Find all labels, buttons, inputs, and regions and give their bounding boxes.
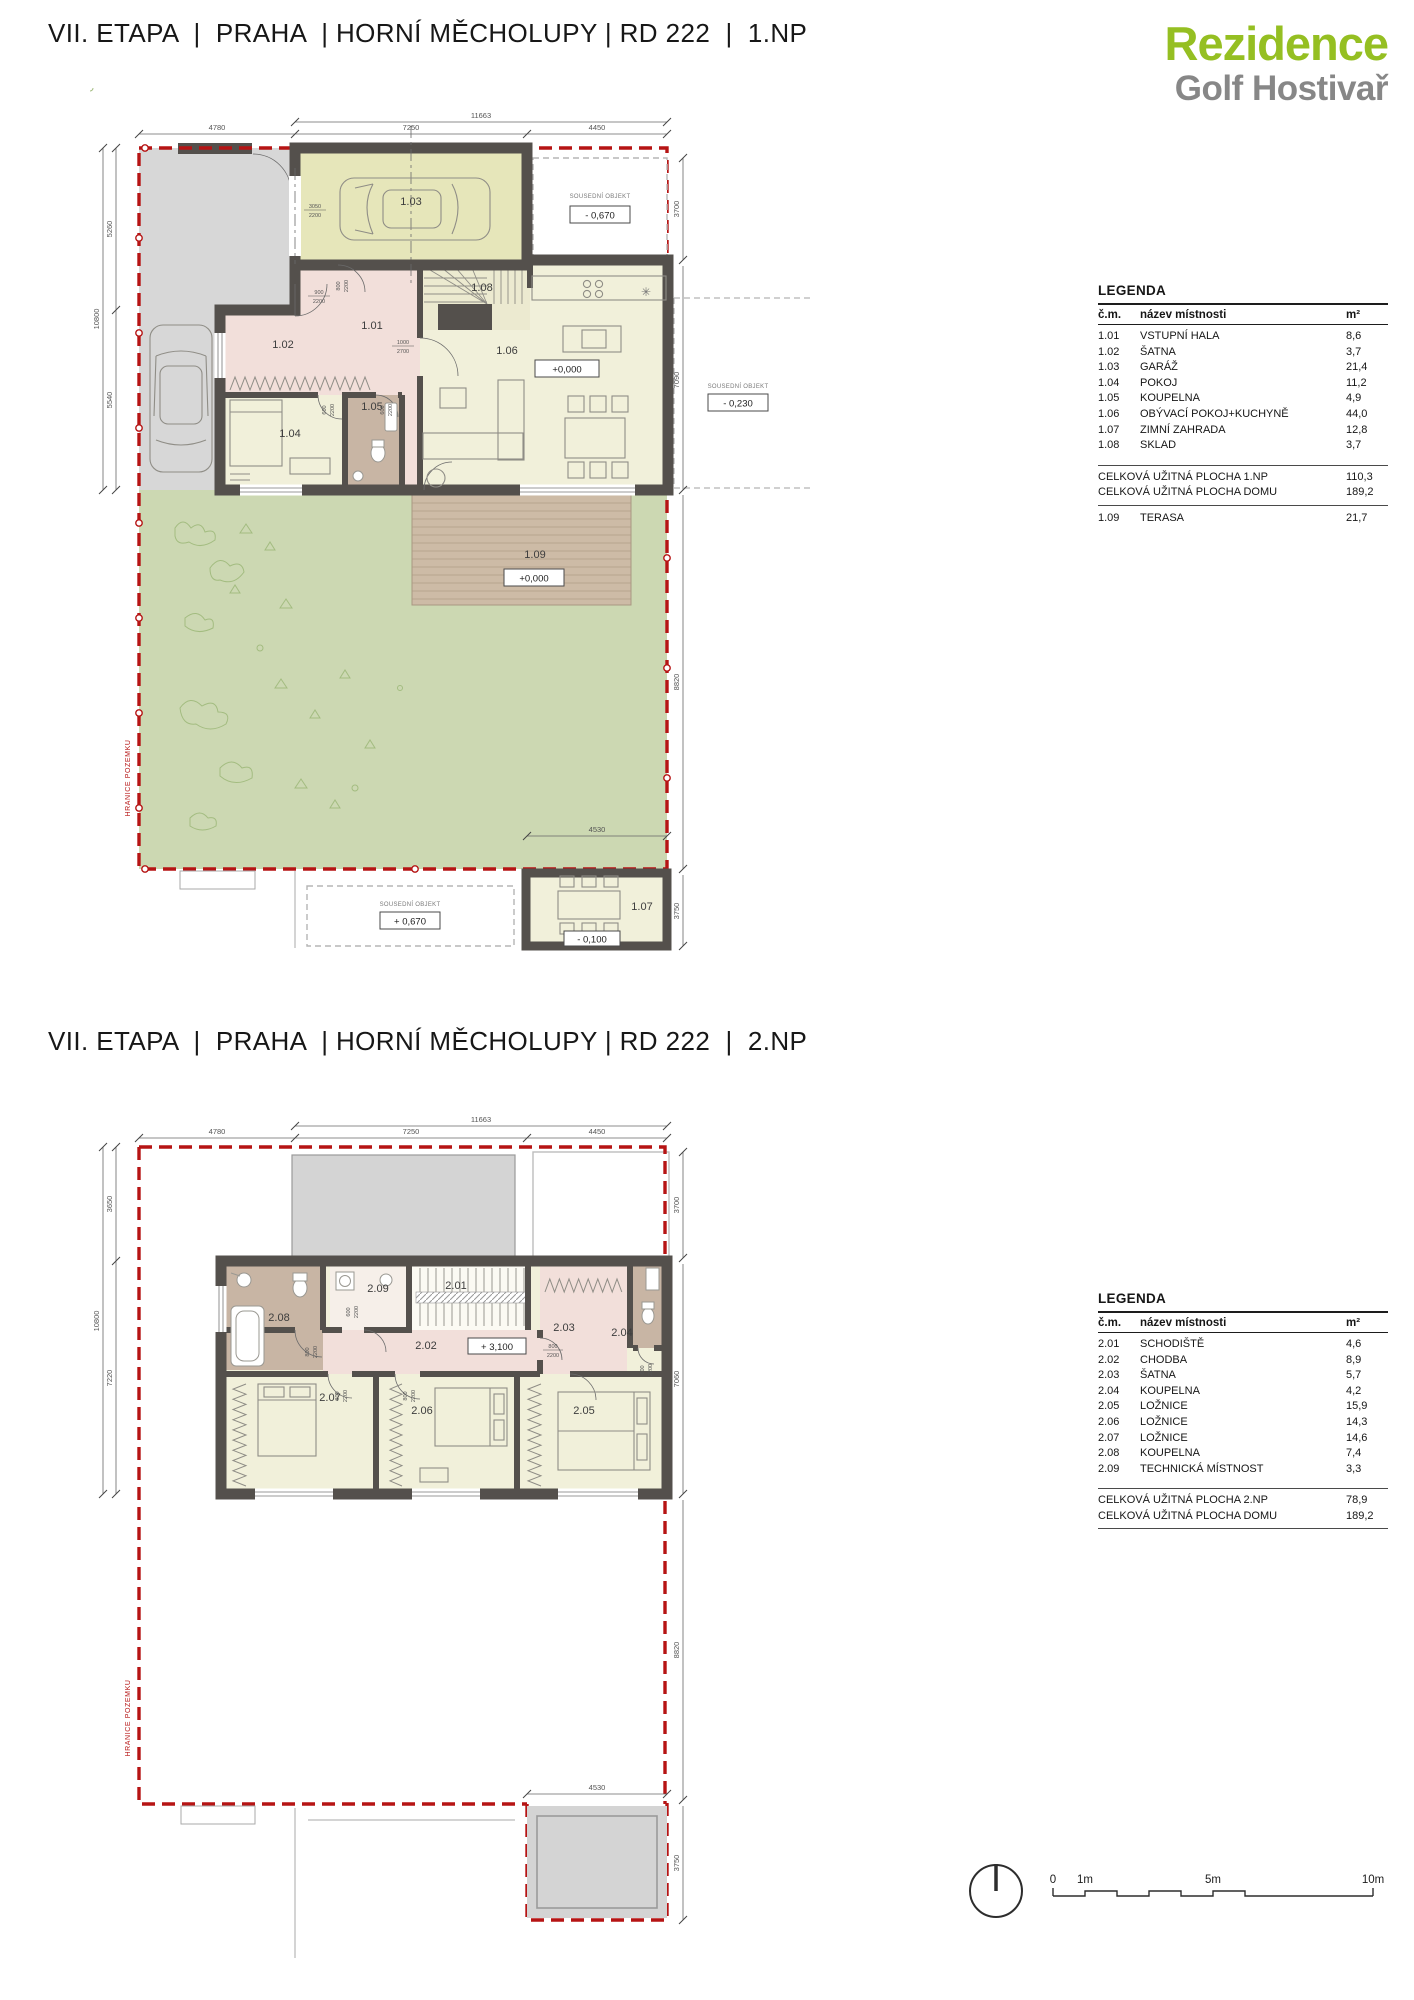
legend-title: LEGENDA <box>1098 1291 1388 1306</box>
sheet-title-1np: VII. ETAPA | PRAHA | HORNÍ MĚCHOLUPY | R… <box>48 18 807 49</box>
hall-elevation: + 3,100 <box>481 1342 513 1353</box>
svg-text:900: 900 <box>314 290 323 296</box>
svg-text:1000: 1000 <box>397 340 409 346</box>
stair-wall <box>438 304 492 330</box>
legend-row: 2.03ŠATNA5,7 <box>1098 1368 1388 1384</box>
room-label-2-02: 2.02 <box>415 1340 436 1352</box>
svg-text:800: 800 <box>548 1344 557 1350</box>
legend-row: 2.05LOŽNICE15,9 <box>1098 1399 1388 1415</box>
living-elevation: +0,000 <box>552 365 581 376</box>
room-label-2-08: 2.08 <box>268 1312 289 1324</box>
legend-row: 2.02CHODBA8,9 <box>1098 1353 1388 1369</box>
svg-text:600: 600 <box>380 405 386 414</box>
scale-tick-1m: 1m <box>1077 1874 1093 1886</box>
svg-text:5260: 5260 <box>105 221 114 238</box>
terrace <box>412 495 631 605</box>
room-label-2-04: 2.04 <box>611 1327 632 1339</box>
svg-text:2200: 2200 <box>343 1390 349 1402</box>
svg-text:11663: 11663 <box>471 111 491 120</box>
legend-row: 1.03GARÁŽ21,4 <box>1098 360 1388 376</box>
sheet-title-2np: VII. ETAPA | PRAHA | HORNÍ MĚCHOLUPY | R… <box>48 1026 807 1057</box>
legend-row: 2.08KOUPELNA7,4 <box>1098 1446 1388 1462</box>
svg-text:2200: 2200 <box>411 1390 417 1402</box>
scale-bar: 0 1m 5m 10m <box>1050 1874 1384 1896</box>
svg-text:2200: 2200 <box>344 280 350 292</box>
room-label-2-09: 2.09 <box>367 1283 388 1295</box>
svg-text:600: 600 <box>322 405 328 414</box>
north-arrow-icon <box>970 1864 1022 1917</box>
svg-text:8820: 8820 <box>672 1642 681 1659</box>
svg-text:2200: 2200 <box>547 1353 559 1359</box>
svg-text:4780: 4780 <box>209 1127 226 1136</box>
appliance-icon: ✳ <box>641 285 651 299</box>
svg-text:4530: 4530 <box>589 1783 606 1792</box>
svg-text:8820: 8820 <box>672 674 681 691</box>
room-label-1-02: 1.02 <box>272 339 293 351</box>
legend-header: č.m. název místnosti m² <box>1098 305 1388 325</box>
svg-text:2200: 2200 <box>313 299 325 305</box>
room-label-2-01: 2.01 <box>445 1280 466 1292</box>
neighbour-right-label: SOUSEDNÍ OBJEKT <box>708 383 769 390</box>
footer-graphics: 0 1m 5m 10m <box>938 1843 1408 1933</box>
boundary-label: HRANICE POZEMKU <box>125 1679 132 1756</box>
neighbour-top-label: SOUSEDNÍ OBJEKT <box>570 193 631 200</box>
legend-row: 1.07ZIMNÍ ZAHRADA12,8 <box>1098 423 1388 439</box>
svg-text:3650: 3650 <box>105 1196 114 1213</box>
legend-row: 2.07LOŽNICE14,6 <box>1098 1431 1388 1447</box>
room-label-1-06: 1.06 <box>496 345 517 357</box>
scale-tick-0: 0 <box>1050 1874 1056 1886</box>
legend-row: 2.09TECHNICKÁ MÍSTNOST3,3 <box>1098 1462 1388 1478</box>
room-label-1-03: 1.03 <box>400 196 421 208</box>
legend-row: 1.08SKLAD3,7 <box>1098 438 1388 454</box>
roof-winter-garden <box>527 1806 667 1918</box>
floorplan-1np: HRANICE POZEMKU SOUSEDNÍ OBJEKT - 0,670 … <box>90 88 810 978</box>
terrace-elevation: +0,000 <box>519 574 548 585</box>
svg-text:10800: 10800 <box>92 309 101 330</box>
room-label-2-03: 2.03 <box>553 1322 574 1334</box>
legend-row: 1.04POKOJ11,2 <box>1098 376 1388 392</box>
scale-tick-5m: 5m <box>1205 1874 1221 1886</box>
legend-row: 1.01VSTUPNÍ HALA8,6 <box>1098 329 1388 345</box>
plan2-house <box>216 1261 668 1500</box>
neighbour-block-top <box>533 1152 669 1258</box>
legend-extra-row: 1.09TERASA21,7 <box>1098 505 1388 527</box>
svg-text:4530: 4530 <box>589 825 606 834</box>
svg-text:7060: 7060 <box>672 1371 681 1388</box>
legend-row: 1.05KOUPELNA4,9 <box>1098 391 1388 407</box>
svg-text:800: 800 <box>336 281 342 290</box>
neighbour-right-elevation: - 0,230 <box>723 399 753 410</box>
legend-header: č.m. název místnosti m² <box>1098 1313 1388 1333</box>
neighbour-top-elevation: - 0,670 <box>585 211 615 222</box>
room-label-1-07: 1.07 <box>631 901 652 913</box>
svg-text:800: 800 <box>403 1391 409 1400</box>
brand-name: Rezidence <box>1165 20 1388 67</box>
svg-text:3700: 3700 <box>672 201 681 218</box>
svg-text:7220: 7220 <box>105 1370 114 1387</box>
room-label-1-04: 1.04 <box>279 428 300 440</box>
svg-text:800: 800 <box>335 1391 341 1400</box>
legend-title: LEGENDA <box>1098 283 1388 298</box>
boundary-label: HRANICE POZEMKU <box>125 739 132 816</box>
svg-text:3700: 3700 <box>672 1197 681 1214</box>
svg-text:3750: 3750 <box>672 1855 681 1872</box>
svg-text:3750: 3750 <box>672 903 681 920</box>
svg-text:800: 800 <box>305 1347 311 1356</box>
svg-text:7250: 7250 <box>403 1127 420 1136</box>
legend-row: 2.01SCHODIŠTĚ4,6 <box>1098 1337 1388 1353</box>
neighbour-bottom-label: SOUSEDNÍ OBJEKT <box>380 901 441 908</box>
legend-row: 1.06OBÝVACÍ POKOJ+KUCHYNĚ44,0 <box>1098 407 1388 423</box>
room-label-1-01: 1.01 <box>361 320 382 332</box>
svg-text:600: 600 <box>640 1365 646 1374</box>
svg-text:600: 600 <box>346 1307 352 1316</box>
room-label-2-06: 2.06 <box>411 1405 432 1417</box>
room-label-1-08: 1.08 <box>471 282 492 294</box>
svg-text:2200: 2200 <box>354 1306 360 1318</box>
legend-row: 1.02ŠATNA3,7 <box>1098 345 1388 361</box>
legend-totals: CELKOVÁ UŽITNÁ PLOCHA 2.NP78,9 CELKOVÁ U… <box>1098 1488 1388 1529</box>
svg-text:2200: 2200 <box>388 404 394 416</box>
svg-text:4450: 4450 <box>589 123 606 132</box>
winter-garden: 1.07 - 0,100 <box>526 873 667 946</box>
legend-totals: CELKOVÁ UŽITNÁ PLOCHA 1.NP110,3 CELKOVÁ … <box>1098 465 1388 505</box>
svg-text:7250: 7250 <box>403 123 420 132</box>
svg-text:7090: 7090 <box>672 372 681 389</box>
legend-row: 2.04KOUPELNA4,2 <box>1098 1384 1388 1400</box>
neighbour-bottom-elevation: + 0,670 <box>394 917 426 928</box>
svg-text:4780: 4780 <box>209 123 226 132</box>
room-label-1-09: 1.09 <box>524 549 545 561</box>
drawing-sheet: VII. ETAPA | PRAHA | HORNÍ MĚCHOLUPY | R… <box>0 0 1414 2000</box>
svg-text:2700: 2700 <box>397 349 409 355</box>
winter-garden-elevation: - 0,100 <box>577 935 607 946</box>
roof-below <box>292 1155 515 1261</box>
room-living <box>420 330 668 490</box>
scale-tick-10m: 10m <box>1362 1874 1384 1886</box>
svg-text:2200: 2200 <box>309 213 321 219</box>
room-label-2-05: 2.05 <box>573 1405 594 1417</box>
svg-text:3050: 3050 <box>309 204 321 210</box>
svg-text:2200: 2200 <box>648 1364 654 1376</box>
svg-text:2200: 2200 <box>330 404 336 416</box>
legend-2np: LEGENDA č.m. název místnosti m² 2.01SCHO… <box>1098 1291 1388 1529</box>
svg-text:5540: 5540 <box>105 392 114 409</box>
svg-text:2200: 2200 <box>313 1346 319 1358</box>
neighbour-block-right <box>674 298 810 488</box>
svg-text:11663: 11663 <box>471 1115 491 1124</box>
floorplan-2np: HRANICE POZEMKU <box>90 1108 810 1968</box>
brand-logo: Rezidence Golf Hostivař <box>1165 20 1388 106</box>
legend-row: 2.06LOŽNICE14,3 <box>1098 1415 1388 1431</box>
svg-text:10800: 10800 <box>92 1311 101 1332</box>
brand-subtitle: Golf Hostivař <box>1165 71 1388 106</box>
legend-1np: LEGENDA č.m. název místnosti m² 1.01VSTU… <box>1098 283 1388 526</box>
svg-text:4450: 4450 <box>589 1127 606 1136</box>
